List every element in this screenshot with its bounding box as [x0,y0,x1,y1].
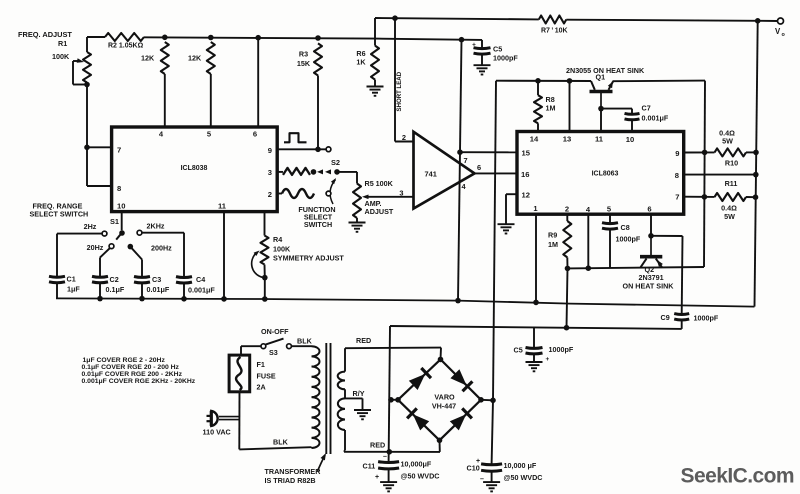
svg-text:ON-OFF: ON-OFF [261,327,289,336]
svg-text:11: 11 [218,202,227,211]
svg-text:C9: C9 [661,313,670,322]
svg-text:5: 5 [607,205,612,214]
svg-text:C1: C1 [67,275,76,284]
svg-text:1000pF: 1000pF [694,314,719,323]
svg-text:2A: 2A [257,383,266,392]
svg-text:Q1: Q1 [596,73,606,82]
svg-text:+: + [546,356,550,363]
svg-text:+: + [476,458,480,465]
svg-text:BLK: BLK [297,337,313,346]
svg-text:R1: R1 [58,39,67,48]
svg-text:@50 WVDC: @50 WVDC [401,472,440,481]
svg-text:9: 9 [675,149,679,158]
svg-text:7: 7 [464,156,468,165]
svg-text:2: 2 [268,190,272,199]
svg-text:6: 6 [253,130,257,139]
svg-text:C5: C5 [514,346,523,355]
svg-text:12: 12 [522,191,530,200]
svg-text:R/Y: R/Y [353,389,365,398]
svg-text:1μF: 1μF [67,285,80,294]
svg-text:2: 2 [565,205,569,214]
svg-text:1000pF: 1000pF [493,54,518,63]
svg-text:C5: C5 [493,45,502,54]
svg-text:SWITCH: SWITCH [304,220,332,229]
svg-text:1: 1 [533,204,538,213]
svg-text:R11: R11 [725,179,738,188]
svg-text:15: 15 [522,149,531,158]
svg-text:R9: R9 [548,231,557,240]
svg-text:+: + [472,42,476,49]
svg-text:741: 741 [425,170,437,179]
svg-text:RED: RED [356,336,371,345]
svg-text:ICL8063: ICL8063 [592,171,619,178]
svg-text:ON HEAT SINK: ON HEAT SINK [623,282,675,291]
svg-text:S1: S1 [110,217,119,226]
svg-text:C8: C8 [621,223,630,232]
svg-text:6: 6 [647,205,651,214]
svg-text:ADJUST: ADJUST [365,207,394,216]
svg-text:C2: C2 [110,275,119,284]
svg-text:+: + [375,474,379,481]
svg-text:0.001μF: 0.001μF [642,114,669,123]
svg-text:0.1μF: 0.1μF [106,285,125,294]
svg-text:SYMMETRY ADJUST: SYMMETRY ADJUST [273,254,344,263]
svg-text:V: V [775,27,781,36]
svg-text:0.001μF COVER RGE 2KHz - 20KHz: 0.001μF COVER RGE 2KHz - 20KHz [82,378,196,385]
svg-text:12K: 12K [188,54,202,63]
svg-text:6: 6 [477,163,481,172]
svg-text:3: 3 [399,189,403,198]
svg-text:1K: 1K [356,58,366,67]
svg-text:R4: R4 [273,235,282,244]
svg-text:IS TRIAD R82B: IS TRIAD R82B [265,476,316,485]
svg-text:C11: C11 [363,462,376,471]
svg-text:2Hz: 2Hz [84,222,97,231]
svg-text:110 VAC: 110 VAC [203,428,231,437]
svg-text:20Hz: 20Hz [87,243,104,252]
svg-text:200Hz: 200Hz [151,244,172,253]
svg-text:@50 WVDC: @50 WVDC [504,473,543,482]
svg-text:FUSE: FUSE [257,372,276,381]
svg-text:1M: 1M [546,104,556,113]
svg-text:11: 11 [595,135,604,144]
svg-text:10,000μF: 10,000μF [401,460,432,469]
svg-text:10,000 μF: 10,000 μF [504,461,537,470]
svg-text:0.001μF: 0.001μF [188,286,215,295]
svg-text:0.01μF: 0.01μF [147,285,170,294]
svg-text:R2 1.05KΩ: R2 1.05KΩ [108,43,144,50]
svg-text:C7: C7 [642,104,651,113]
svg-text:SHORT LEAD: SHORT LEAD [396,71,403,111]
svg-text:S3: S3 [269,348,278,357]
svg-text:ICL8038: ICL8038 [181,165,208,172]
svg-text:C3: C3 [152,275,161,284]
svg-text:2: 2 [402,133,406,142]
svg-text:VH-447: VH-447 [432,402,456,411]
svg-text:12K: 12K [141,54,155,63]
svg-text:TRANSFORMER: TRANSFORMER [265,467,322,476]
svg-text:R5 100K: R5 100K [365,179,394,188]
svg-text:10: 10 [626,135,634,144]
svg-text:9: 9 [268,146,272,155]
svg-text:1000pF: 1000pF [616,235,641,244]
svg-text:16: 16 [521,170,529,179]
svg-text:8: 8 [117,184,121,193]
svg-text:SELECT SWITCH: SELECT SWITCH [30,210,89,219]
svg-text:7: 7 [117,146,121,155]
svg-text:VARO: VARO [434,393,455,402]
svg-text:5W: 5W [722,137,733,146]
svg-text:4: 4 [462,182,467,191]
svg-text:1000pF: 1000pF [549,345,574,354]
svg-text:RED: RED [370,441,385,450]
svg-text:0.01μF COVER RGE 200 - 2KHz: 0.01μF COVER RGE 200 - 2KHz [82,371,183,378]
svg-text:S2: S2 [331,158,340,167]
svg-text:FREQ. ADJUST: FREQ. ADJUST [18,30,72,39]
svg-text:R10: R10 [725,159,738,168]
svg-text:7: 7 [675,193,679,202]
svg-text:1M: 1M [548,240,558,249]
svg-text:14: 14 [530,135,539,144]
svg-text:SeekIC.com: SeekIC.com [681,465,795,488]
svg-text:2N3055 ON HEAT SINK: 2N3055 ON HEAT SINK [566,66,645,75]
svg-text:F1: F1 [257,360,265,369]
svg-text:4: 4 [159,130,164,139]
svg-text:10: 10 [117,202,125,211]
svg-text:R7 ’ 10K: R7 ’ 10K [541,28,568,35]
svg-text:–: – [383,454,387,461]
svg-text:C4: C4 [196,275,205,284]
svg-text:1μF COVER RGE 2 - 20Hz: 1μF COVER RGE 2 - 20Hz [83,357,166,364]
svg-text:100K: 100K [273,245,291,254]
svg-text:100K: 100K [52,52,70,61]
svg-text:R3: R3 [299,50,308,59]
svg-text:8: 8 [675,171,679,180]
svg-text:BLK: BLK [273,438,289,447]
svg-text:3: 3 [268,168,272,177]
svg-text:15K: 15K [297,59,311,68]
svg-text:13: 13 [563,135,571,144]
svg-text:2KHz: 2KHz [147,222,165,231]
svg-text:5W: 5W [724,212,735,221]
svg-text:o: o [782,32,786,38]
svg-text:5: 5 [207,130,212,139]
